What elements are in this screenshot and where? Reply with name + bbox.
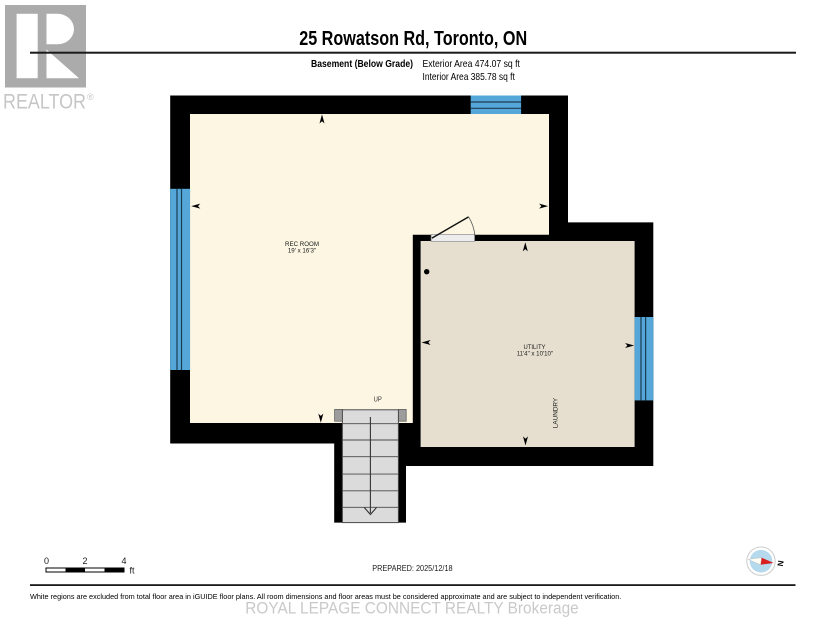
- svg-text:Exterior Area 474.07 sq ft: Exterior Area 474.07 sq ft: [423, 58, 520, 70]
- svg-text:ROYAL LEPAGE CONNECT REALTY B: ROYAL LEPAGE CONNECT REALTY Brokerage: [245, 600, 578, 618]
- svg-text:ft: ft: [130, 566, 136, 576]
- svg-text:0: 0: [44, 556, 49, 566]
- svg-text:11'4" x 10'10": 11'4" x 10'10": [517, 351, 553, 358]
- svg-text:UP: UP: [374, 397, 382, 404]
- svg-text:19' x 16'3": 19' x 16'3": [288, 248, 316, 255]
- svg-text:Interior Area 385.78 sq ft: Interior Area 385.78 sq ft: [423, 71, 515, 83]
- svg-text:LAUNDRY: LAUNDRY: [553, 397, 560, 428]
- svg-text:Basement (Below Grade): Basement (Below Grade): [311, 58, 413, 70]
- svg-text:PREPARED: 2025/12/18: PREPARED: 2025/12/18: [372, 564, 453, 573]
- svg-text:REALTOR: REALTOR: [3, 90, 86, 113]
- svg-text:4: 4: [121, 556, 126, 566]
- svg-text:®: ®: [87, 92, 94, 102]
- svg-text:2: 2: [82, 556, 87, 566]
- svg-text:25 Rowatson Rd, Toronto, ON: 25 Rowatson Rd, Toronto, ON: [299, 27, 527, 50]
